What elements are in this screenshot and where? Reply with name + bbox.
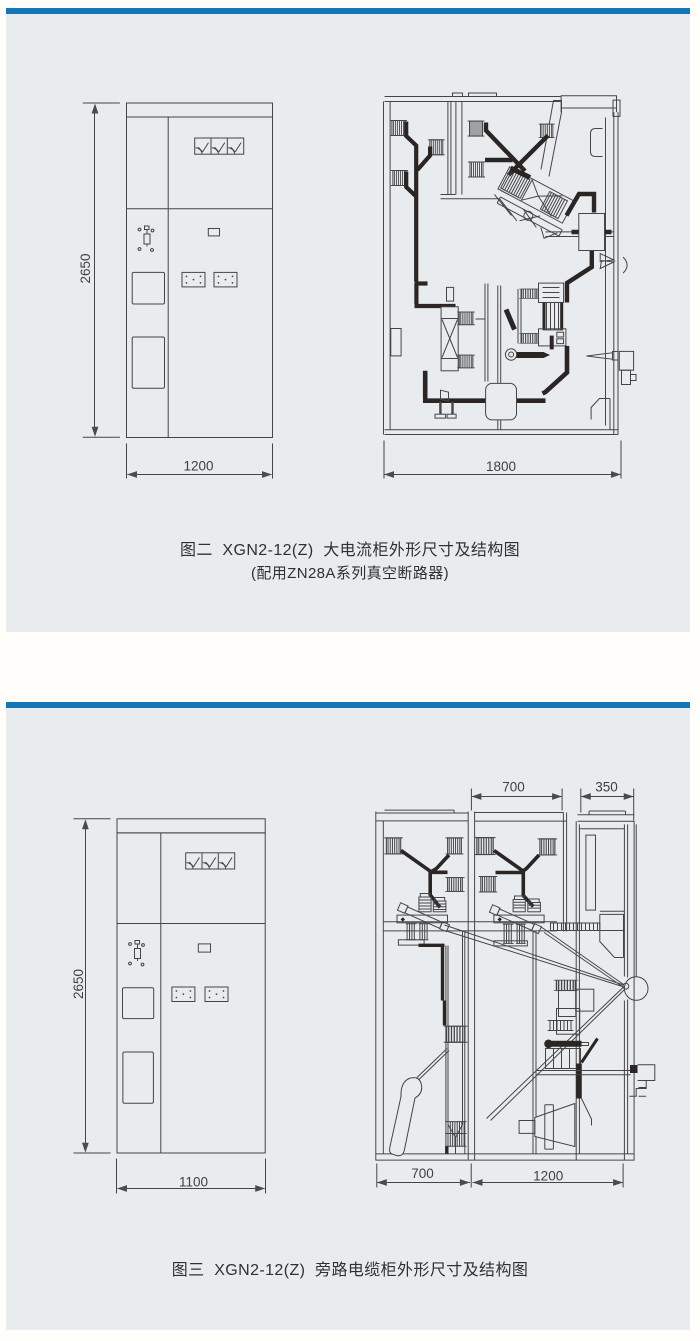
svg-text:1800: 1800	[486, 459, 516, 474]
svg-text:700: 700	[502, 780, 525, 795]
svg-text:700: 700	[411, 1166, 434, 1181]
svg-text:350: 350	[595, 780, 618, 795]
svg-text:1100: 1100	[179, 1175, 208, 1190]
svg-text:1200: 1200	[533, 1169, 563, 1184]
svg-text:2650: 2650	[71, 969, 86, 999]
svg-text:1200: 1200	[183, 459, 213, 474]
svg-text:2650: 2650	[78, 253, 93, 283]
